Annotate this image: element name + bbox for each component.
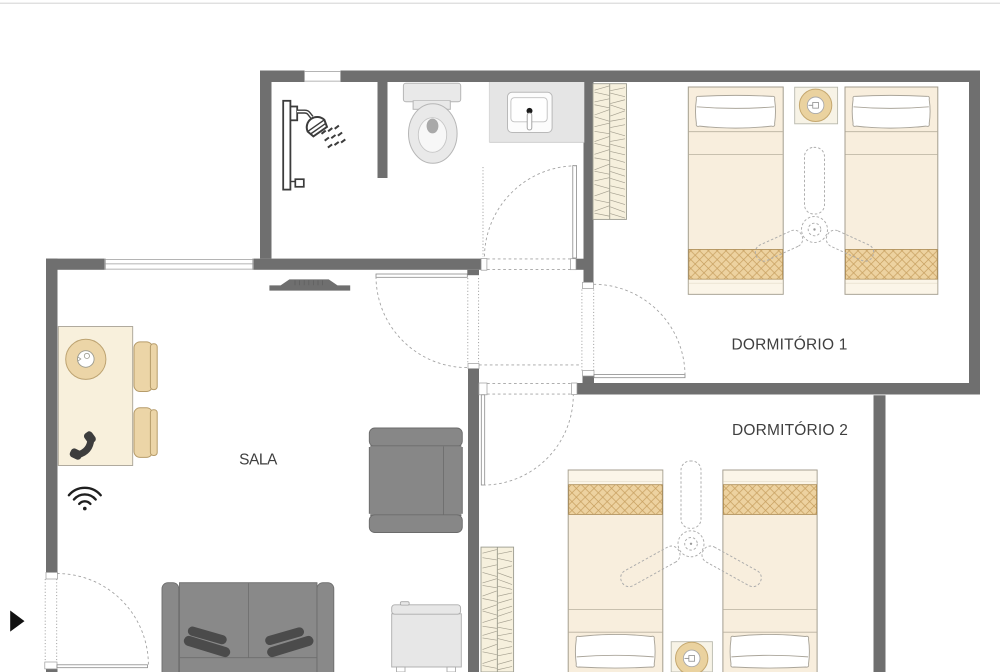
svg-text:SALA: SALA — [239, 452, 278, 469]
svg-text:DORMITÓRIO 1: DORMITÓRIO 1 — [731, 337, 847, 354]
svg-text:DORMITÓRIO 2: DORMITÓRIO 2 — [732, 422, 848, 439]
